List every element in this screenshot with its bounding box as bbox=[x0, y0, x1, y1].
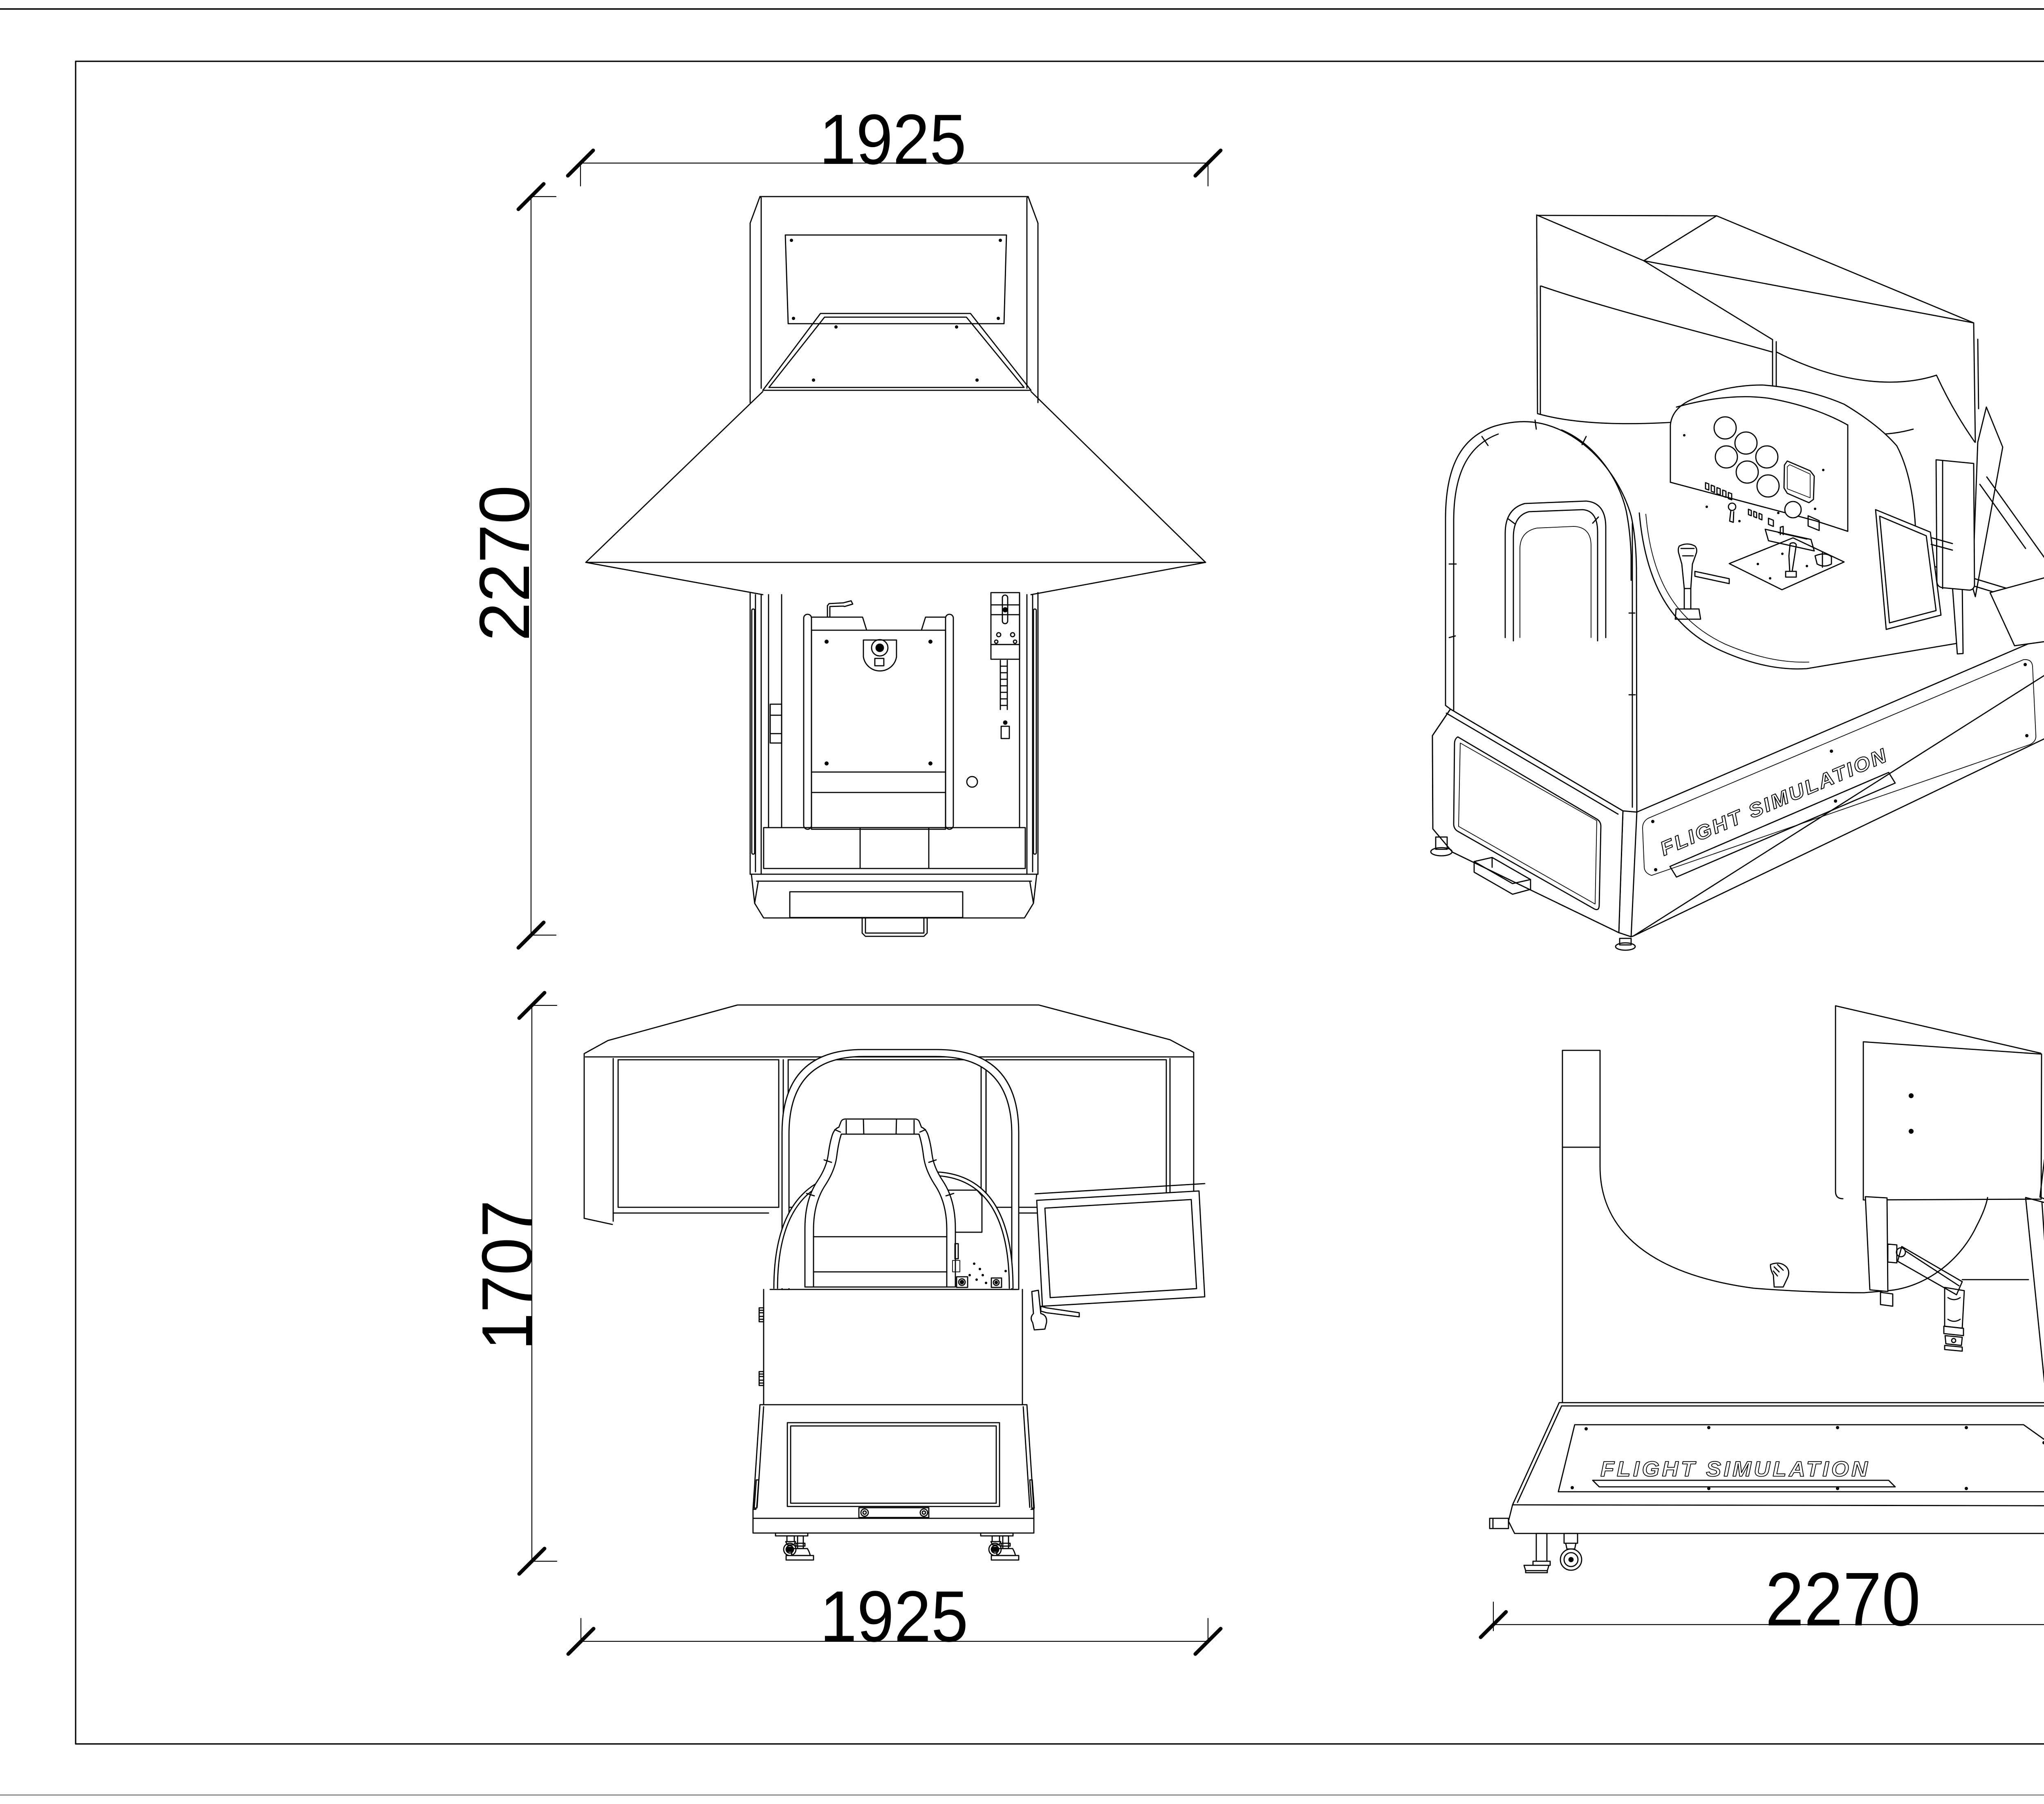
svg-text:2270: 2270 bbox=[1765, 1557, 1921, 1642]
svg-text:1925: 1925 bbox=[819, 99, 966, 179]
svg-text:1707: 1707 bbox=[467, 1200, 547, 1350]
svg-text:2270: 2270 bbox=[464, 485, 544, 641]
svg-text:FLIGHT SIMULATION: FLIGHT SIMULATION bbox=[1600, 1457, 1870, 1481]
svg-text:1925: 1925 bbox=[820, 1576, 968, 1657]
